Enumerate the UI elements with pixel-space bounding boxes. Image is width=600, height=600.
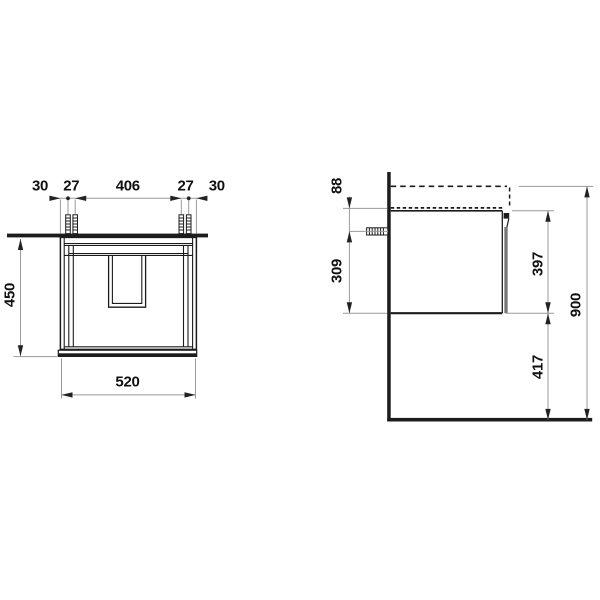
- side-left-dimensions: [343, 197, 388, 314]
- dim-label-front-width: 520: [115, 374, 139, 389]
- counter-dashed-outline: [391, 186, 510, 208]
- front-height-dimension: [14, 239, 58, 357]
- side-middle-dimensions: [506, 211, 554, 420]
- dim-label-floor-clearance: 417: [530, 354, 545, 378]
- side-cabinet-profile: [391, 208, 509, 313]
- dim-label-left-screw-gap: 27: [63, 179, 79, 194]
- dim-label-screw-to-bottom: 309: [330, 258, 345, 282]
- front-mounting-screws: [66, 215, 191, 234]
- dim-label-total-height: 900: [568, 293, 583, 317]
- drawer-handle-profile: [504, 213, 510, 219]
- front-cabinet-outline: [60, 237, 196, 349]
- front-view: [7, 196, 208, 399]
- dim-label-right-margin: 30: [209, 179, 225, 194]
- screw-icon: [73, 215, 78, 234]
- floor-line: [387, 418, 592, 422]
- screw-icon: [66, 215, 71, 234]
- dim-label-top-to-screw: 88: [330, 178, 345, 194]
- dim-label-cabinet-height: 397: [530, 251, 545, 275]
- dim-label-left-margin: 30: [32, 179, 48, 194]
- side-view: [343, 172, 593, 422]
- dim-label-front-height: 450: [2, 283, 17, 307]
- screw-icon: [186, 215, 191, 234]
- technical-drawing-canvas: 30 27 406 27 30 450 520 88 309 397 417 9…: [0, 0, 600, 600]
- siphon-cutout: [109, 255, 146, 307]
- dim-label-right-screw-gap: 27: [177, 179, 193, 194]
- drawing-linework: [0, 0, 600, 600]
- dim-label-screw-span: 406: [116, 179, 140, 194]
- front-bottom-band: [58, 350, 196, 356]
- wall-line: [387, 172, 391, 421]
- screw-icon: [179, 215, 184, 234]
